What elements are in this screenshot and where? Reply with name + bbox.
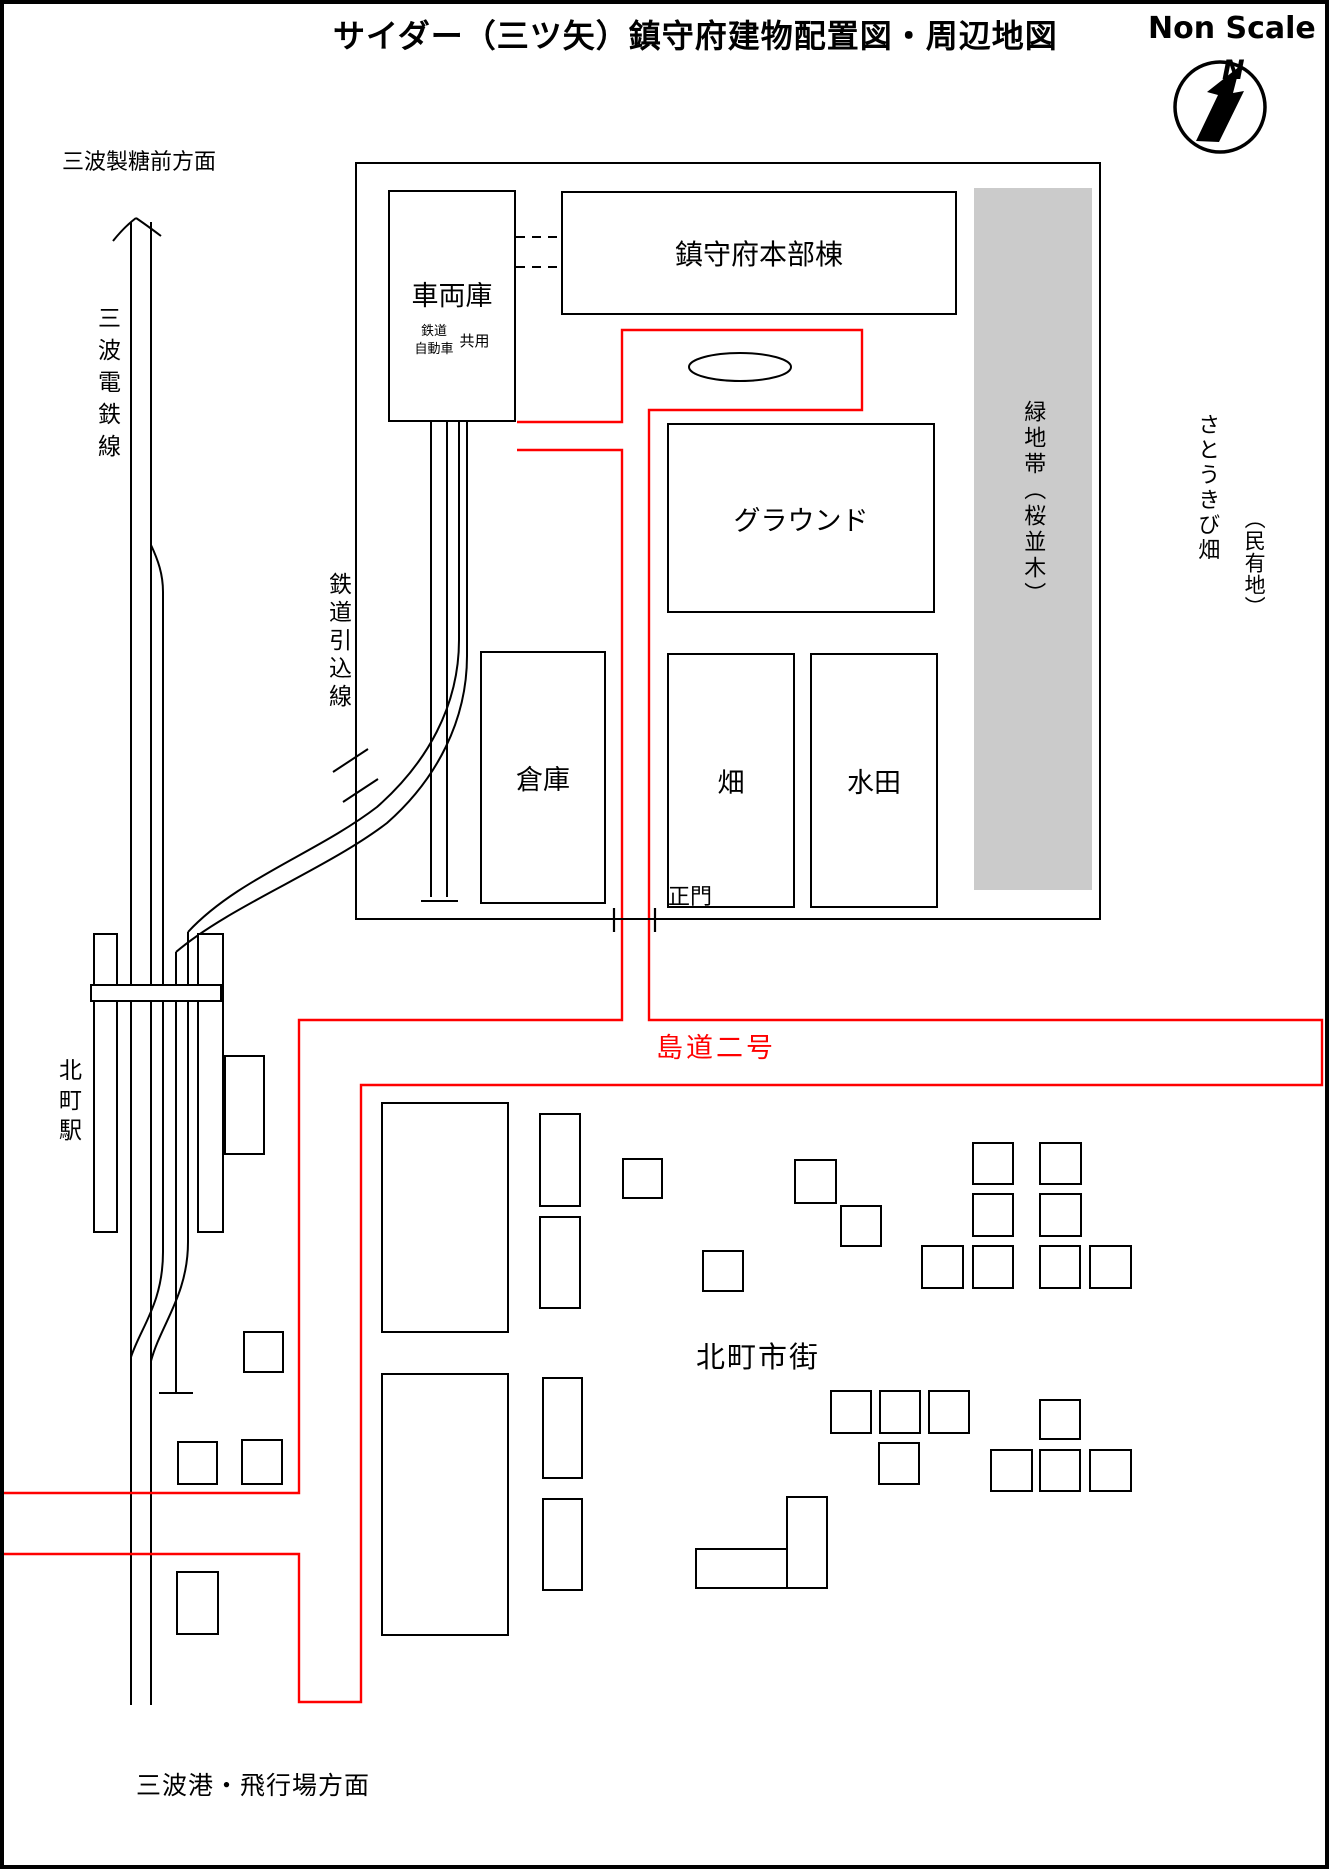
city-building [539,1113,581,1207]
siding-name-label: 鉄道引込線 [324,572,350,712]
city-building [177,1441,218,1485]
city-building [878,1442,920,1485]
station-platform [93,933,118,1233]
city-building [1039,1399,1081,1440]
station-platform [197,933,224,1233]
city-building [879,1390,921,1434]
city-building [972,1193,1014,1237]
city-building [1089,1245,1132,1289]
city-building [786,1496,828,1589]
sugarcane-field-label: さとうきび畑 [1194,413,1219,563]
field-label: 畑 [718,761,745,800]
depot-sub-rail: 鉄道 [421,324,447,339]
city-building [695,1548,788,1589]
paddy-label: 水田 [847,761,901,800]
compass-north-letter: N [1222,55,1245,86]
road-name-label: 島道二号 [656,1033,776,1064]
city-building [972,1142,1014,1185]
ground-label: グラウンド [734,499,869,538]
railway-station-track [131,545,163,1357]
building-headquarters: 鎮守府本部棟 [561,191,957,315]
warehouse-label: 倉庫 [516,758,570,797]
city-building [840,1205,882,1247]
station-footbridge [90,984,222,1002]
city-building [972,1245,1014,1289]
railway-name-label: 三波電鉄線 [93,306,119,466]
city-building [622,1158,663,1199]
city-building [921,1245,964,1289]
city-building [1039,1142,1082,1185]
page-title: サイダー（三ツ矢）鎮守府建物配置図・周辺地図 [333,18,1035,55]
site-map: 車両庫 鉄道 自動車 共用 鎮守府本部棟 グラウンド 倉庫 畑 水田 [0,0,1329,1869]
building-warehouse: 倉庫 [480,651,606,904]
city-building [794,1159,837,1204]
vehicle-depot-label: 車両庫 [412,274,493,313]
depot-sub-car: 自動車 [414,342,453,357]
station-building [224,1055,265,1155]
scale-note: Non Scale [1148,12,1316,47]
headquarters-label: 鎮守府本部棟 [675,233,843,273]
city-building [539,1216,581,1309]
railway-north-arrow-icon [113,218,161,241]
direction-port-airfield: 三波港・飛行場方面 [136,1772,370,1801]
railway-main-line [131,222,151,1705]
city-building [1039,1245,1081,1289]
building-vehicle-depot: 車両庫 鉄道 自動車 共用 [388,190,516,422]
main-gate-label: 正門 [668,885,712,910]
city-building [176,1571,219,1635]
city-building [542,1377,583,1479]
city-building [702,1250,744,1292]
city-building [928,1390,970,1434]
city-building [381,1373,509,1636]
depot-sub-shared: 共用 [460,330,490,351]
private-land-label: （民有地） [1242,508,1266,618]
city-building [1089,1449,1132,1492]
greenbelt-label: 緑地帯（桜並木） [1020,400,1045,608]
city-building [241,1439,283,1485]
city-building [1039,1193,1082,1237]
city-area-label: 北町市街 [696,1341,820,1374]
city-building [1039,1449,1081,1492]
station-name-label: 北町駅 [54,1058,80,1148]
area-paddy: 水田 [810,653,938,908]
area-ground: グラウンド [667,423,935,613]
city-building [990,1449,1033,1492]
city-building [830,1390,872,1434]
city-building [542,1498,583,1591]
direction-sugar-mill: 三波製糖前方面 [62,150,216,175]
city-building [381,1102,509,1333]
area-field: 畑 [667,653,795,908]
city-building [243,1331,284,1373]
